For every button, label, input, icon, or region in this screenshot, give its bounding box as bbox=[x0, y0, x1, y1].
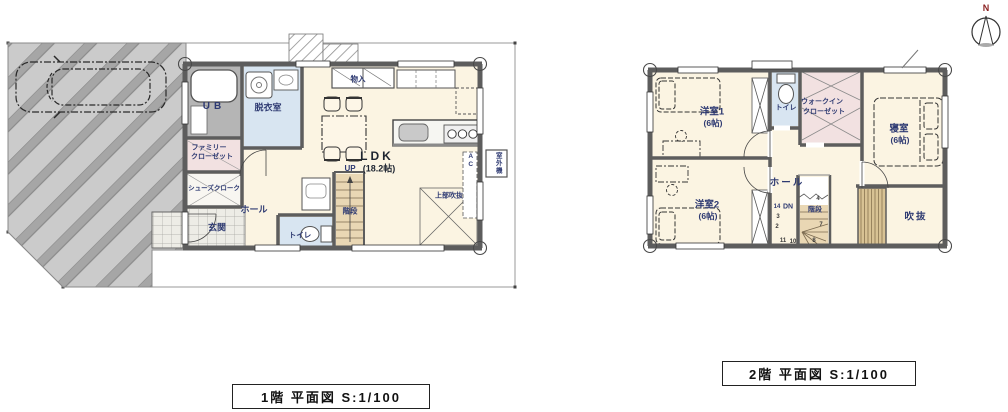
ac-unit-marks bbox=[463, 150, 507, 218]
compass bbox=[972, 16, 1000, 47]
driveway bbox=[8, 43, 186, 287]
floor1-caption: 1階 平面図 S:1/100 bbox=[232, 384, 430, 409]
toilet2-fixture bbox=[777, 74, 795, 104]
floor2-plan bbox=[644, 50, 952, 253]
floor1-plan bbox=[7, 34, 517, 289]
washbasin-hall bbox=[302, 178, 330, 210]
storage-closet bbox=[332, 68, 394, 88]
stairs2-void bbox=[800, 177, 828, 205]
floor2-caption-text: 2階 平面図 S:1/100 bbox=[749, 364, 889, 383]
floorplan-drawing: UB 脱衣室 ファミリー クローゼット シューズクローク 玄関 ホール トイレ … bbox=[0, 0, 1008, 412]
plan-geometry bbox=[0, 0, 1008, 412]
toilet1-fixture bbox=[301, 226, 332, 242]
washing-machine bbox=[246, 72, 272, 98]
floor1-caption-text: 1階 平面図 S:1/100 bbox=[261, 387, 401, 406]
floor2-caption: 2階 平面図 S:1/100 bbox=[722, 361, 916, 386]
eave-hatch bbox=[289, 34, 358, 62]
room-wic bbox=[802, 72, 860, 143]
kitchen-counter bbox=[393, 120, 480, 147]
vanity-dressing bbox=[274, 70, 298, 90]
slat-lines bbox=[861, 189, 882, 245]
roof-tick bbox=[902, 50, 918, 68]
